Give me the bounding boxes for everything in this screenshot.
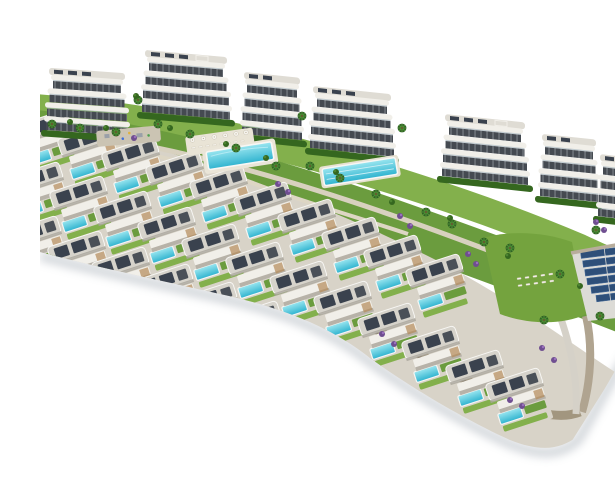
apartment-building-5 bbox=[535, 133, 603, 209]
apartment-building-2 bbox=[137, 49, 235, 127]
development-render bbox=[40, 16, 615, 470]
apartment-building-4 bbox=[437, 113, 533, 192]
